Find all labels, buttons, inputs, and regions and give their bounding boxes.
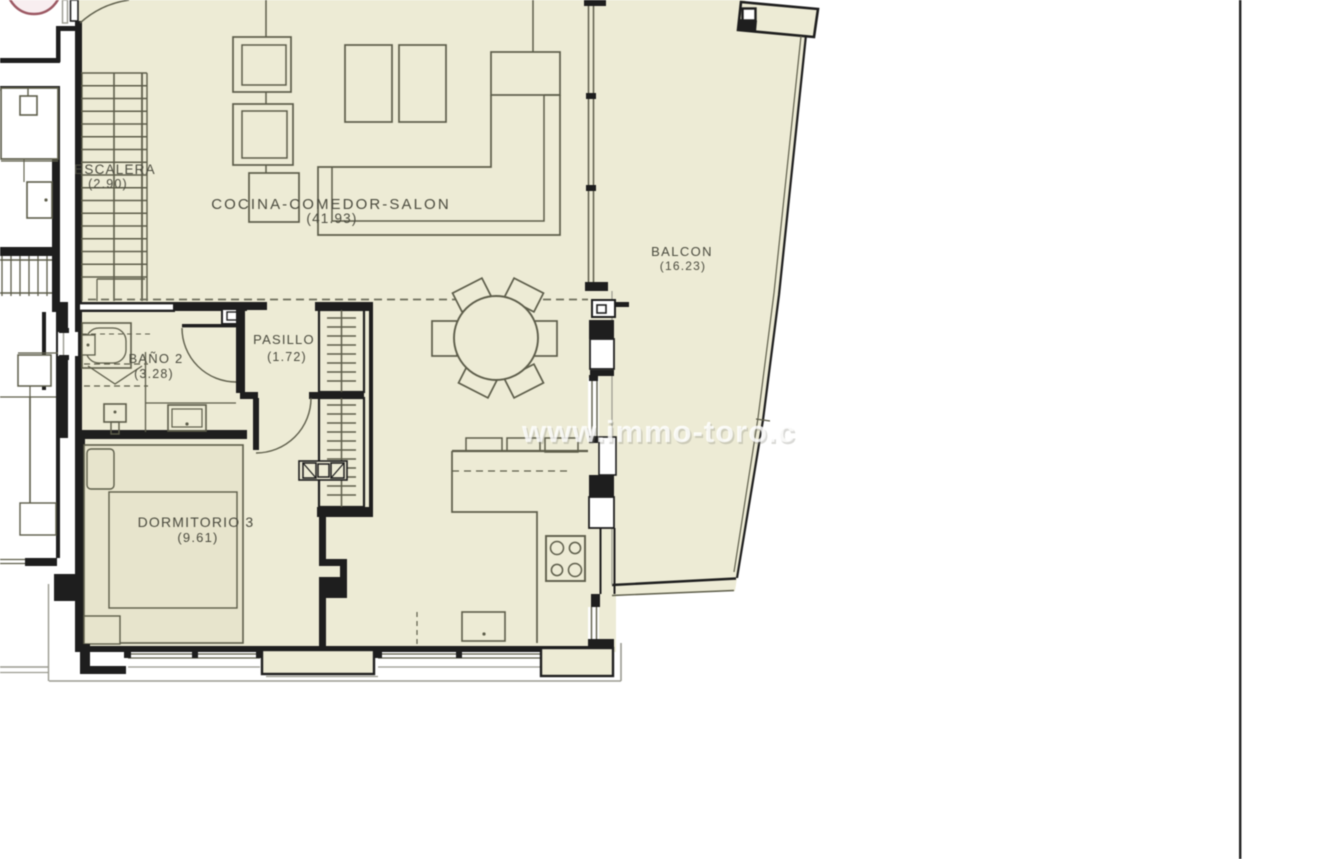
svg-text:(41.93): (41.93)	[306, 211, 357, 226]
svg-text:(3.28): (3.28)	[134, 367, 174, 381]
svg-text:DORMITORIO 3: DORMITORIO 3	[138, 514, 255, 530]
svg-text:ESCALERA: ESCALERA	[74, 162, 156, 177]
svg-text:BAÑO 2: BAÑO 2	[129, 351, 184, 366]
svg-text:BALCON: BALCON	[651, 244, 713, 259]
svg-text:(9.61): (9.61)	[177, 530, 218, 545]
svg-text:(1.72): (1.72)	[267, 350, 307, 364]
svg-text:PASILLO: PASILLO	[253, 332, 315, 347]
svg-text:(16.23): (16.23)	[660, 259, 706, 273]
svg-text:www.immo-toro.c: www.immo-toro.c	[521, 414, 796, 449]
svg-text:(2.90): (2.90)	[88, 177, 128, 191]
